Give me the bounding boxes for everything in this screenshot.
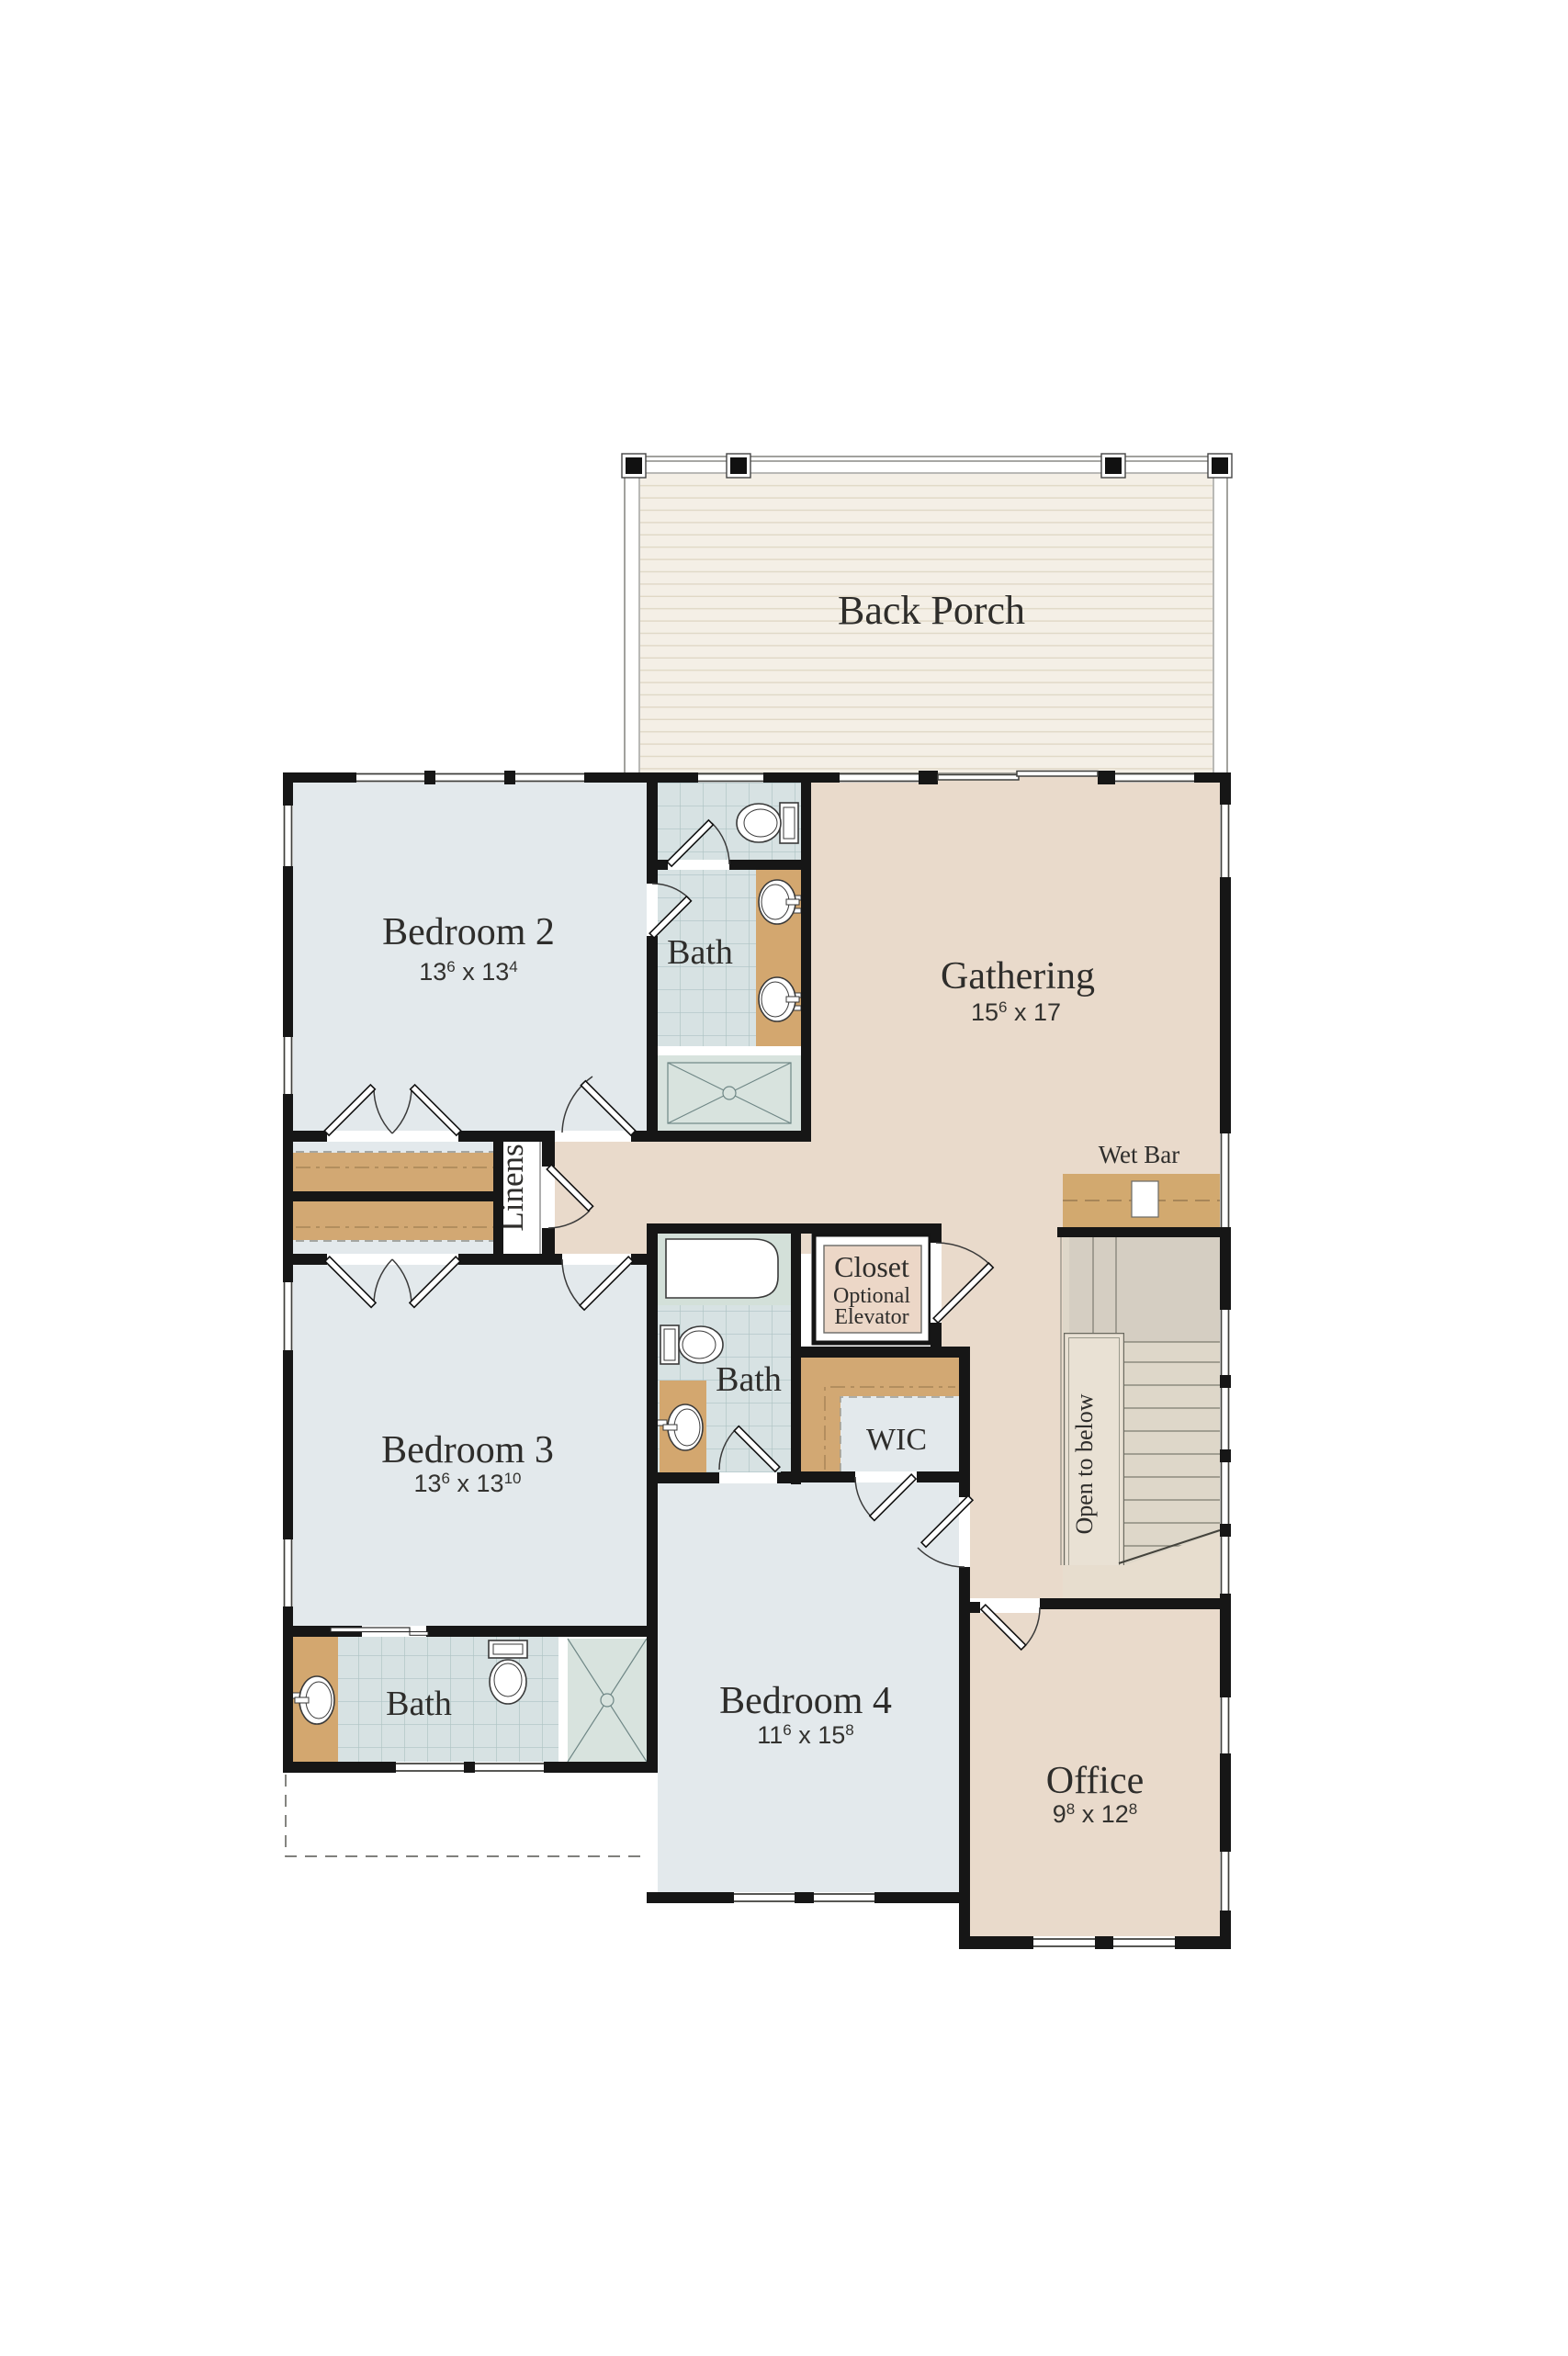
svg-text:Wet Bar: Wet Bar <box>1099 1141 1180 1168</box>
svg-text:Bedroom 4: Bedroom 4 <box>719 1680 892 1722</box>
svg-text:Bedroom 3: Bedroom 3 <box>381 1429 554 1471</box>
svg-text:Elevator: Elevator <box>834 1305 908 1329</box>
svg-text:156 x 17: 156 x 17 <box>971 998 1061 1026</box>
svg-text:Bath: Bath <box>667 933 733 972</box>
svg-text:Closet: Closet <box>834 1250 909 1283</box>
svg-text:Office: Office <box>1046 1760 1145 1802</box>
svg-text:Gathering: Gathering <box>941 955 1095 998</box>
svg-text:Back Porch: Back Porch <box>838 588 1025 633</box>
svg-text:Bath: Bath <box>386 1685 452 1723</box>
svg-text:116 x 158: 116 x 158 <box>757 1721 854 1749</box>
svg-text:Bath: Bath <box>716 1360 782 1399</box>
svg-text:136 x 134: 136 x 134 <box>419 958 518 986</box>
svg-text:WIC: WIC <box>866 1423 927 1457</box>
svg-text:Open to below: Open to below <box>1071 1393 1098 1534</box>
svg-text:98 x 128: 98 x 128 <box>1053 1800 1138 1828</box>
svg-text:Bedroom 2: Bedroom 2 <box>382 911 555 953</box>
